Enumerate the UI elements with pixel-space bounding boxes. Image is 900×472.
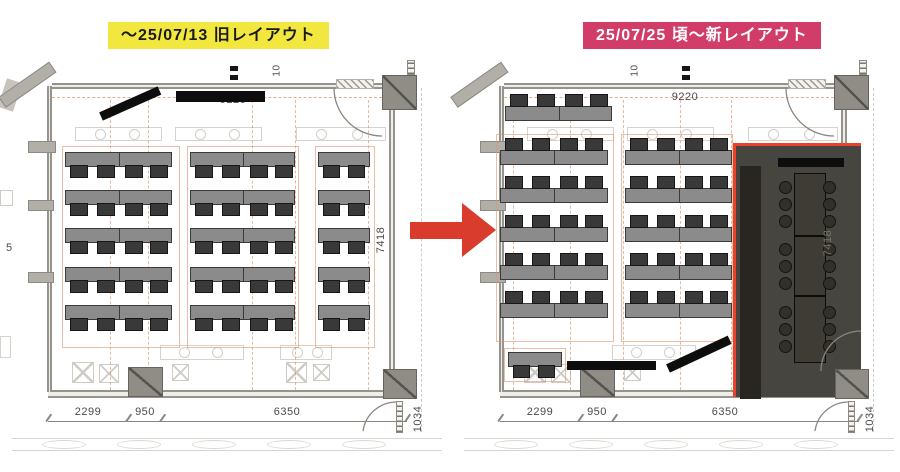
- dim-clipped-top: 10: [272, 60, 283, 82]
- column-top-right: [382, 75, 417, 110]
- door-leaf-top: [407, 60, 415, 75]
- column-bottom-center: [580, 367, 615, 397]
- dim-bottom-3: 6350: [700, 406, 750, 418]
- new-layout-floorplan: 9220 7418 10 2299 950 6350 1034: [452, 0, 900, 472]
- dim-bottom-3: 6350: [262, 406, 312, 418]
- dim-top-width: 9220: [658, 91, 712, 103]
- door-arc-top-right: [334, 88, 382, 136]
- layout-comparison-image: 〜25/07/13 旧レイアウト 25/07/25 頃〜新レイアウト 5 922…: [0, 0, 900, 472]
- old-layout-floorplan: 9220 7418 10 2299 950 6350 1034: [0, 0, 450, 472]
- dim-door-height: 1034: [412, 401, 424, 437]
- dimension-line: [48, 421, 407, 422]
- redaction-bar-horizontal: [176, 91, 265, 102]
- door-arc-bottom-right: [363, 402, 398, 431]
- arrow-head: [462, 203, 496, 257]
- column-top-right: [834, 75, 869, 110]
- door-arc-top-right: [786, 88, 834, 136]
- door-leaf-bottom: [396, 401, 403, 433]
- arrow-shaft: [410, 222, 463, 239]
- door-arc-meeting-room: [821, 331, 861, 371]
- column-bottom-center: [128, 367, 163, 397]
- dim-clipped-top: 10: [630, 60, 641, 82]
- dim-bottom-1: 2299: [516, 406, 564, 418]
- dimension-line: [500, 421, 859, 422]
- door-leaf-top: [859, 60, 867, 75]
- column-bottom-right: [835, 369, 869, 399]
- redaction-bar-horizontal: [567, 361, 656, 370]
- dim-door-height: 1034: [864, 401, 876, 437]
- column-bottom-right: [383, 369, 417, 399]
- dim-bottom-1: 2299: [64, 406, 112, 418]
- dim-side-height: 7418: [375, 220, 387, 260]
- dim-side-height: 7418: [822, 223, 834, 263]
- transition-arrow-icon: [410, 203, 496, 257]
- door-arc-bottom-right: [815, 402, 850, 431]
- door-leaf-bottom: [848, 401, 855, 433]
